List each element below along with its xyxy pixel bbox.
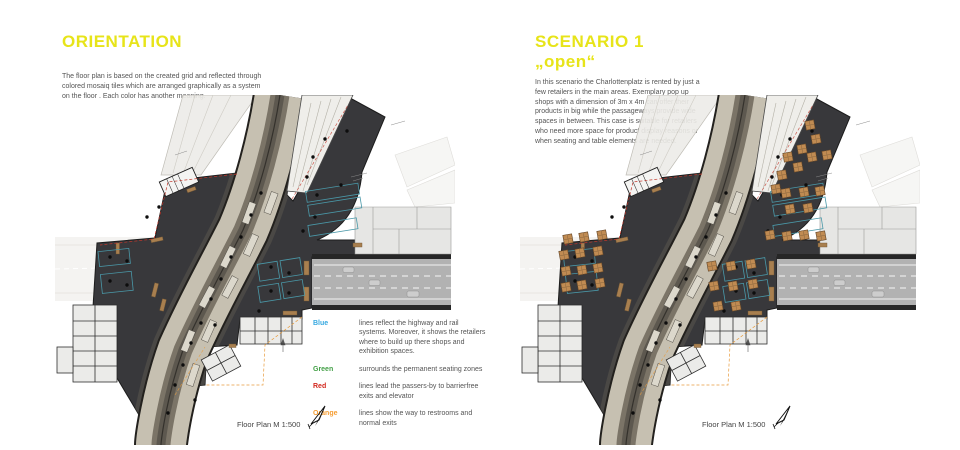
legend-item-green: Green surrounds the permanent seating zo… <box>313 365 488 374</box>
legend-term-red: Red <box>313 382 359 401</box>
scenario-title: SCENARIO 1 „open“ <box>535 32 644 73</box>
legend-term-blue: Blue <box>313 319 359 357</box>
legend-item-red: Red lines lead the passers-by to barrier… <box>313 382 488 401</box>
orientation-title: ORIENTATION <box>62 32 182 52</box>
color-legend: Blue lines reflect the highway and rail … <box>313 319 488 428</box>
legend-item-blue: Blue lines reflect the highway and rail … <box>313 319 488 357</box>
floor-plan-caption-left: Floor Plan M 1:500 <box>237 420 300 429</box>
legend-text-red: lines lead the passers-by to barrierfree… <box>359 382 488 401</box>
legend-item-orange: Orange lines show the way to restrooms a… <box>313 409 488 428</box>
floor-plan-caption-right: Floor Plan M 1:500 <box>702 420 765 429</box>
legend-text-blue: lines reflect the highway and rail syste… <box>359 319 488 357</box>
legend-text-orange: lines show the way to restrooms and norm… <box>359 409 488 428</box>
floor-plan-scenario1 <box>520 95 920 445</box>
legend-term-green: Green <box>313 365 359 374</box>
north-arrow-icon <box>305 404 331 432</box>
legend-text-green: surrounds the permanent seating zones <box>359 365 482 374</box>
north-arrow-icon <box>770 404 796 432</box>
